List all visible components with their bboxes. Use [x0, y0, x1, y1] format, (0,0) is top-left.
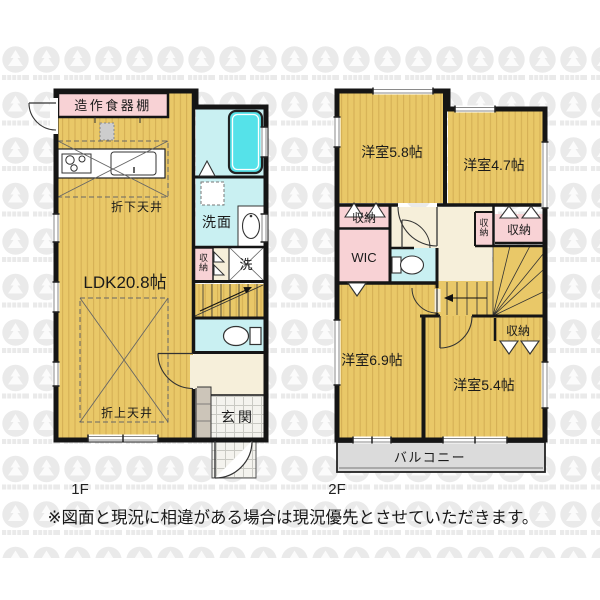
room69-label: 洋室6.9帖: [341, 352, 402, 368]
floor1-plan: 造作食器棚 折下天井 LDK20.8帖 折上天井 洗面 収納 洗 玄関: [29, 91, 268, 478]
balcony-slider: [443, 437, 507, 444]
floorplan-drawing: 造作食器棚 折下天井 LDK20.8帖 折上天井 洗面 収納 洗 玄関: [0, 0, 600, 600]
disclaimer-text: ※図面と現況に相違がある場合は現況優先とさせていただきます。: [48, 508, 539, 527]
toilet2-icon: [392, 256, 424, 274]
window: [542, 142, 549, 208]
floorplan-page: 造作食器棚 折下天井 LDK20.8帖 折上天井 洗面 収納 洗 玄関: [0, 0, 600, 600]
lowered-ceiling-label: 折下天井: [111, 199, 163, 214]
window: [334, 117, 341, 147]
window: [261, 214, 268, 242]
wic-label: WIC: [351, 250, 376, 265]
laundry-nook-floor: [213, 247, 229, 281]
closet-d-label: 収納: [506, 324, 530, 338]
ldk-floor: [58, 93, 193, 438]
washroom-label: 洗面: [202, 214, 232, 230]
vanity-faucet: [250, 215, 253, 218]
room47-label: 洋室4.7帖: [463, 157, 524, 173]
room58-label: 洋室5.8帖: [361, 144, 422, 160]
floor1-name: 1F: [71, 481, 89, 498]
stair-closet-label: 収納: [199, 252, 208, 272]
window: [542, 362, 549, 408]
floor2-name: 2F: [328, 481, 346, 498]
closet-c-label: 収納: [507, 223, 531, 237]
window: [455, 106, 495, 113]
closet-b-label: 収納: [479, 217, 488, 237]
raised-ceiling-label: 折上天井: [101, 405, 153, 420]
window: [373, 88, 433, 95]
entrance-label: 玄関: [221, 409, 255, 425]
laundry-label: 洗: [239, 257, 252, 272]
balcony-slider: [353, 437, 391, 444]
ldk-label: LDK20.8帖: [83, 273, 166, 292]
window: [53, 214, 60, 242]
bathtub-icon: [229, 111, 262, 173]
closet-a-label: 収納: [352, 211, 376, 225]
toilet1-icon: [224, 327, 262, 346]
balcony-label: バルコニー: [394, 450, 466, 465]
washroom-cabinet-mark: [201, 182, 224, 205]
refrigerator-mark: [100, 123, 114, 140]
room54-label: 洋室5.4帖: [453, 377, 514, 393]
hall2-floor-lower: [437, 248, 492, 281]
cupboard-label: 造作食器棚: [74, 98, 152, 113]
floor2-plan: 洋室5.8帖 洋室4.7帖 収納 WIC 収納 収納 収納 洋室6.9帖 洋室5…: [334, 88, 549, 473]
shoe-cabinet: [196, 387, 211, 438]
window: [261, 127, 268, 157]
window: [53, 362, 60, 386]
window: [53, 282, 60, 312]
window: [88, 435, 158, 442]
window: [334, 320, 341, 385]
